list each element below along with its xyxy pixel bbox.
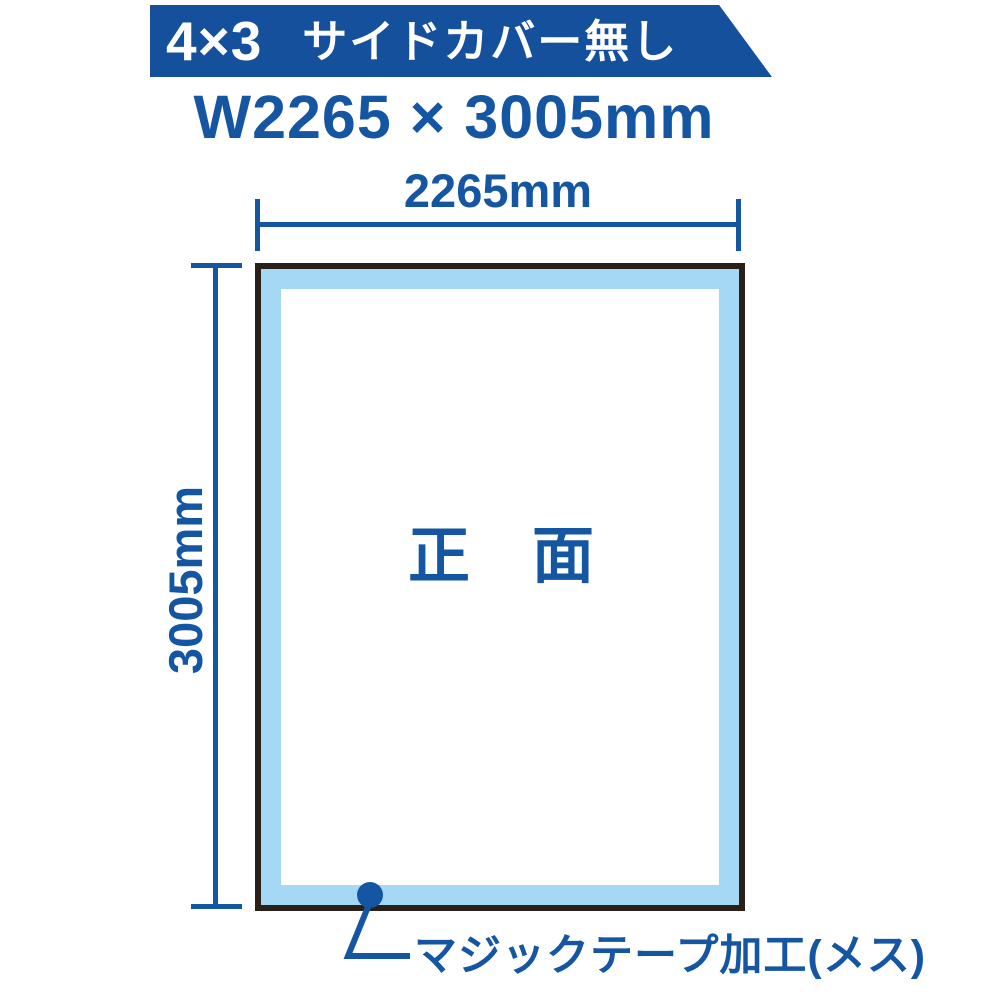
- panel-front-label: 正 面: [283, 526, 719, 588]
- width-dimension-rule: [255, 222, 741, 227]
- product-variant-banner: 4×3 サイドカバー無し: [150, 5, 772, 77]
- variant-name-label: サイドカバー無し: [302, 19, 678, 64]
- velcro-position-dot: [357, 882, 383, 908]
- width-dimension-line: [255, 199, 741, 251]
- width-dimension-tick-right: [736, 199, 741, 251]
- height-dimension-rule: [213, 263, 218, 909]
- height-dimension-tick-bottom: [191, 904, 242, 909]
- size-ratio-label: 4×3: [166, 14, 262, 69]
- overall-dimensions-title: W2265 × 3005mm: [148, 87, 760, 148]
- height-dimension-value: 3005mm: [163, 455, 209, 705]
- velcro-callout-label: マジックテープ加工(メス): [414, 935, 926, 978]
